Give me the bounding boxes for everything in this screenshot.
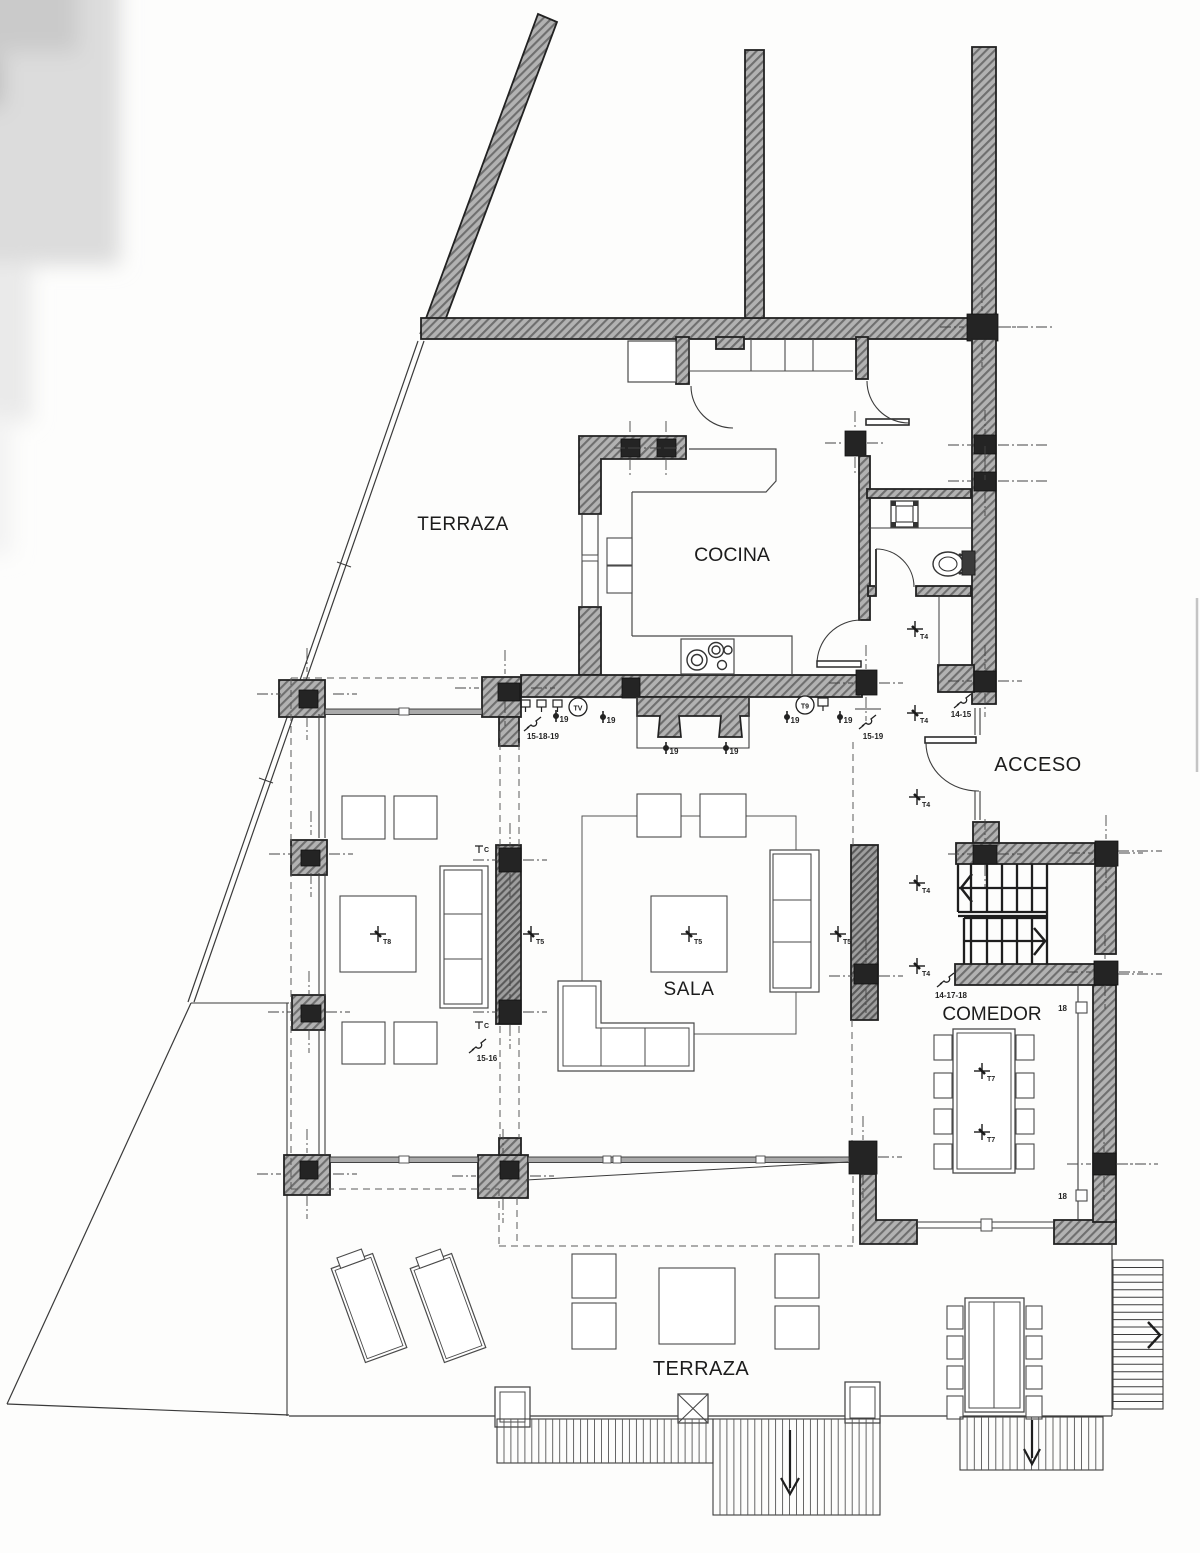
svg-text:COMEDOR: COMEDOR (942, 1004, 1041, 1025)
svg-text:19: 19 (844, 716, 853, 725)
svg-text:T4: T4 (922, 802, 930, 809)
svg-text:14-15: 14-15 (951, 710, 972, 719)
svg-text:T5: T5 (843, 939, 851, 946)
svg-text:T9: T9 (801, 704, 809, 711)
svg-text:19: 19 (670, 747, 679, 756)
svg-text:T4: T4 (922, 971, 930, 978)
svg-text:T4: T4 (920, 634, 928, 641)
svg-text:15-16: 15-16 (477, 1054, 498, 1063)
svg-text:T4: T4 (922, 888, 930, 895)
svg-text:19: 19 (791, 716, 800, 725)
svg-text:15-19: 15-19 (863, 732, 884, 741)
svg-text:T4: T4 (920, 718, 928, 725)
svg-text:T7: T7 (987, 1137, 995, 1144)
svg-text:COCINA: COCINA (694, 544, 770, 566)
svg-text:19: 19 (730, 747, 739, 756)
svg-text:C: C (484, 847, 489, 854)
svg-text:TERRAZA: TERRAZA (417, 514, 508, 535)
svg-text:T5: T5 (536, 939, 544, 946)
svg-text:T8: T8 (383, 939, 391, 946)
svg-text:SALA: SALA (664, 979, 715, 1000)
svg-text:ACCESO: ACCESO (994, 754, 1081, 776)
svg-text:T5: T5 (694, 939, 702, 946)
svg-text:15-18-19: 15-18-19 (527, 732, 560, 741)
svg-text:18: 18 (1058, 1004, 1067, 1013)
svg-text:14-17-18: 14-17-18 (935, 991, 968, 1000)
svg-text:19: 19 (607, 716, 616, 725)
svg-text:19: 19 (560, 715, 569, 724)
svg-text:C: C (484, 1023, 489, 1030)
svg-text:TV: TV (574, 706, 583, 713)
svg-text:18: 18 (1058, 1192, 1067, 1201)
svg-text:T7: T7 (987, 1076, 995, 1083)
svg-text:TERRAZA: TERRAZA (653, 1358, 749, 1380)
